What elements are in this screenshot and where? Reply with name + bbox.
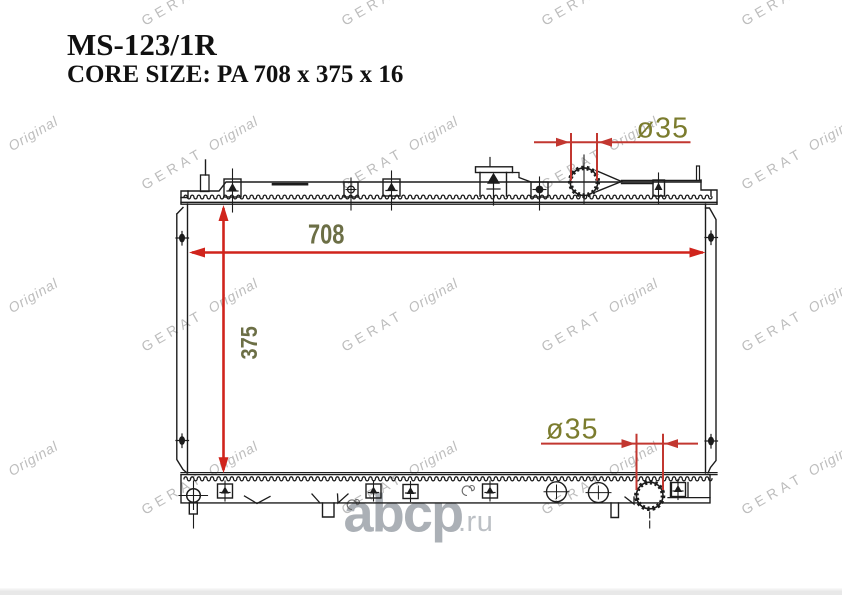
svg-text:CORE SIZE: PA 708 x 375 x 16: CORE SIZE: PA 708 x 375 x 16 bbox=[67, 61, 403, 88]
svg-text:ø35: ø35 bbox=[637, 113, 690, 145]
svg-text:.ru: .ru bbox=[458, 506, 493, 538]
svg-text:708: 708 bbox=[308, 219, 344, 250]
svg-text:ø35: ø35 bbox=[546, 414, 599, 446]
svg-text:MS-123/1R: MS-123/1R bbox=[67, 27, 217, 62]
svg-text:375: 375 bbox=[235, 326, 262, 359]
